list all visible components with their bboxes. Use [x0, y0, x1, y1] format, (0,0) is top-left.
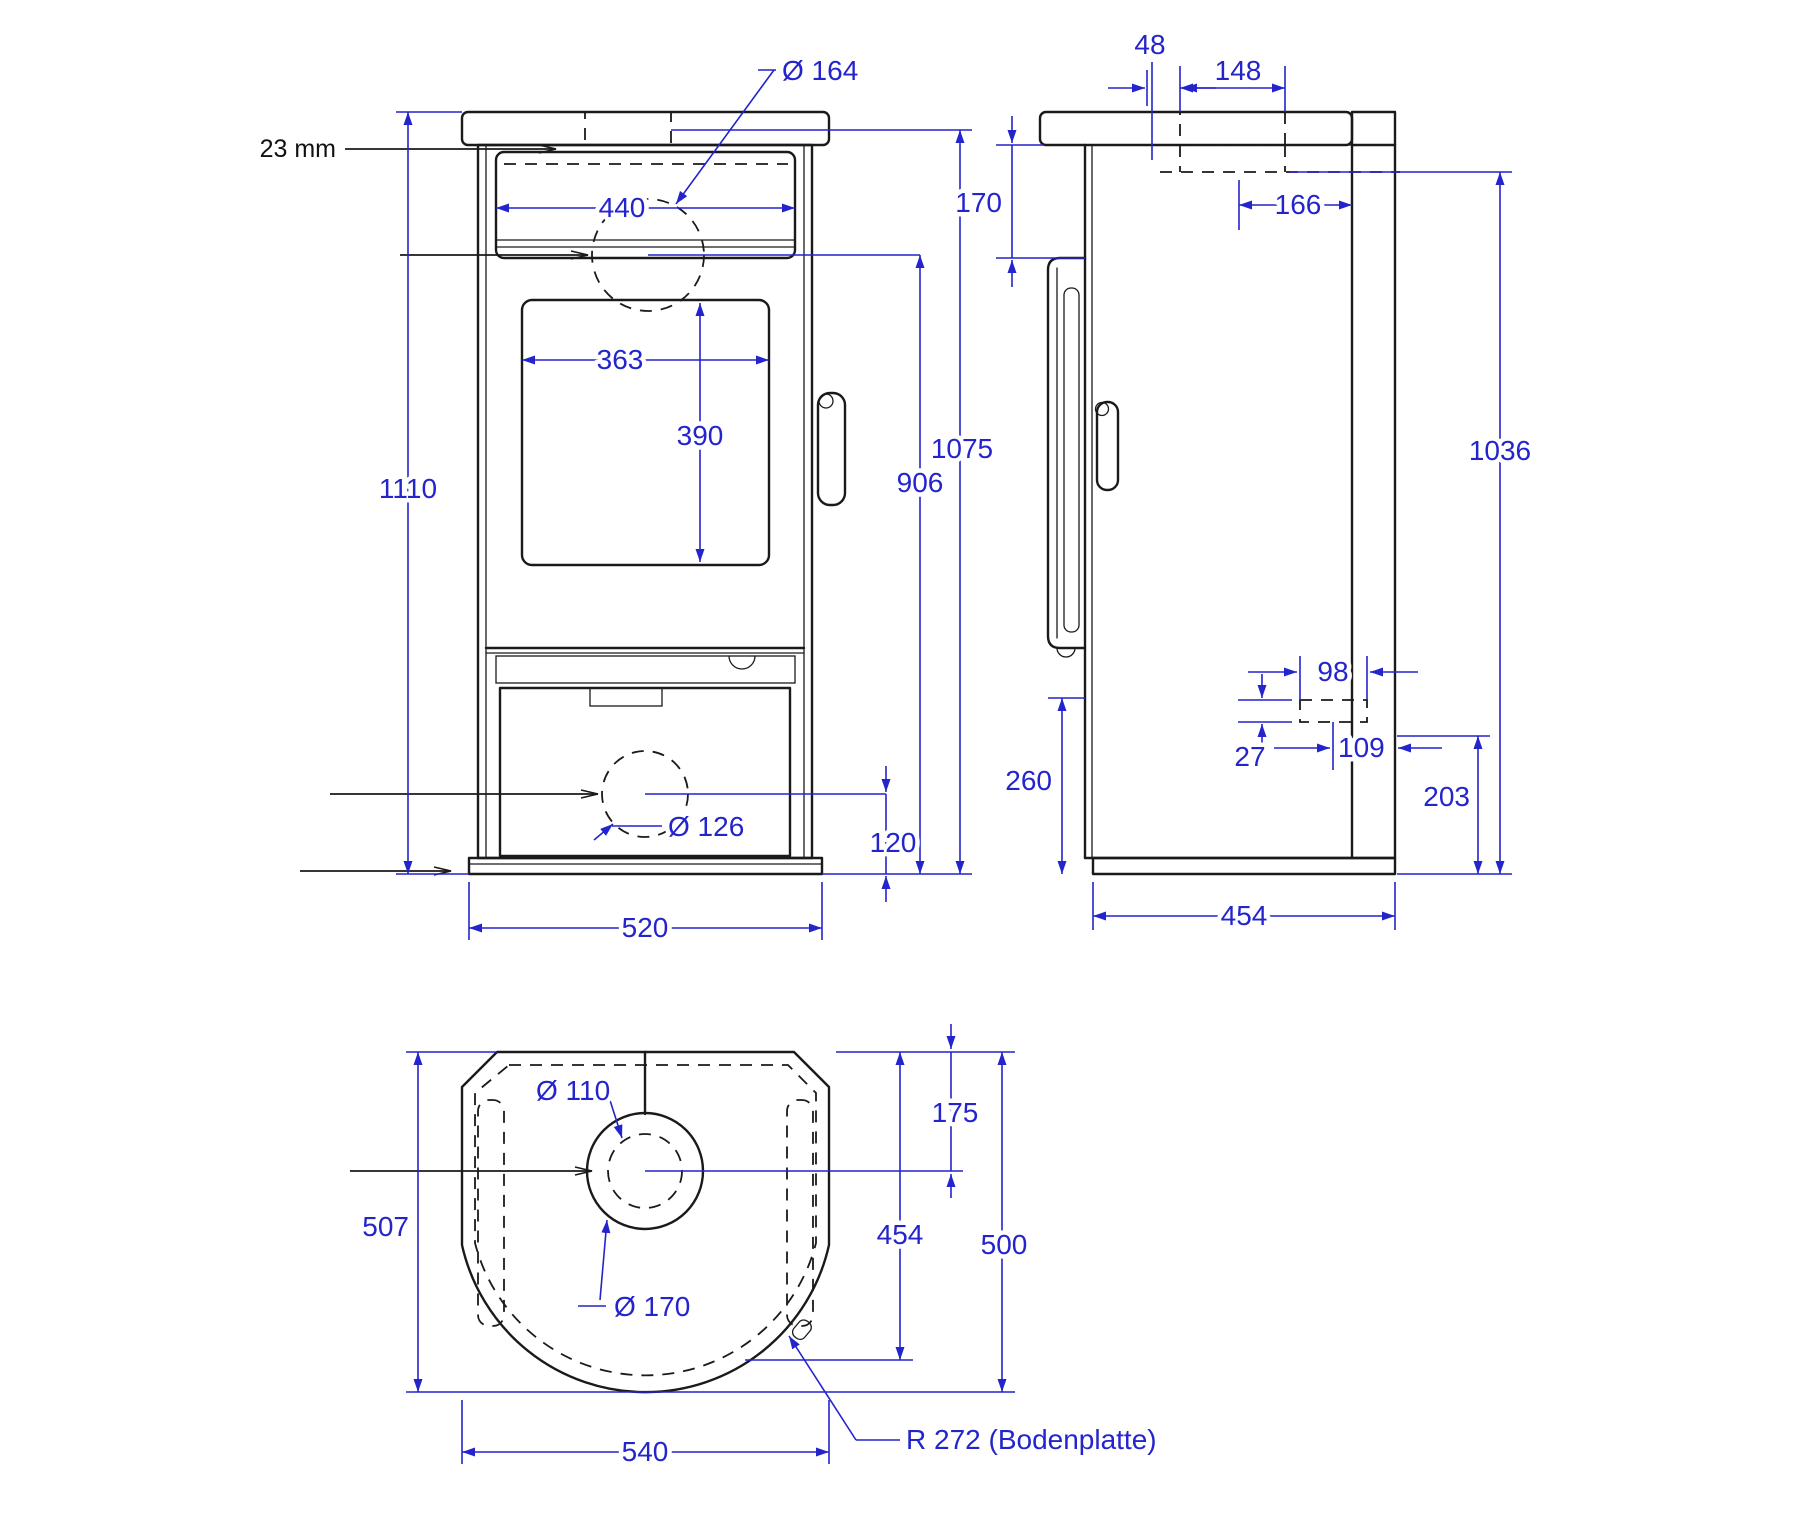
side-dim-lower-section: 260: [1005, 698, 1085, 874]
side-door-foot: [1057, 648, 1075, 657]
side-dim-rear-inlet-bottom: 203: [1397, 736, 1490, 874]
front-ash-lip: [496, 656, 795, 683]
front-handle-mount: [819, 394, 833, 408]
front-lower-panel: [500, 688, 790, 856]
side-plinth: [1093, 858, 1395, 874]
front-dim-top-box-width: 440: [496, 192, 795, 223]
side-dim-203-label: 203: [1423, 781, 1470, 812]
front-top-plate: [462, 112, 829, 145]
front-dim-363-label: 363: [597, 344, 644, 375]
side-dim-98-label: 98: [1317, 656, 1348, 687]
side-dim-1036-label: 1036: [1469, 435, 1531, 466]
side-dim-109-label: 109: [1338, 732, 1385, 763]
side-dim-outlet-offset: 48: [1108, 29, 1216, 160]
side-dim-rear-inlet-offset: 109: [1274, 722, 1442, 770]
top-dia-110-label: Ø 110: [536, 1075, 610, 1106]
front-warming-box: [496, 152, 795, 258]
front-ash-pull: [729, 656, 755, 669]
front-dim-glass-width: 363: [522, 344, 769, 375]
front-dia-164-label: Ø 164: [782, 55, 858, 86]
top-left-slot-hidden: [478, 1100, 504, 1326]
front-dia-126-label: Ø 126: [668, 811, 744, 842]
front-note-23mm: 23 mm: [260, 135, 336, 163]
side-rear-inlet-hidden: [1300, 700, 1367, 722]
top-label-radius: R 272 (Bodenplatte): [789, 1336, 1157, 1455]
top-dim-overall-507: 507: [362, 1052, 418, 1392]
top-dim-500-label: 500: [981, 1229, 1028, 1260]
front-dim-total-height: 1110: [379, 112, 437, 874]
top-dia-170-label: Ø 170: [614, 1291, 690, 1322]
top-view: 507 175 454 500 540 Ø 110 Ø 170: [350, 1024, 1157, 1467]
top-dim-flue-from-front: 175: [932, 1024, 979, 1198]
front-dim-440-label: 440: [599, 192, 646, 223]
front-dim-120-label: 120: [870, 827, 917, 858]
drawing-page: 23 mm 440 363 390 1110 906: [0, 0, 1800, 1514]
top-dim-front-to-arc: 454: [877, 1052, 924, 1360]
top-label-dia-110: Ø 110: [536, 1075, 622, 1138]
side-dim-166-label: 166: [1275, 189, 1322, 220]
front-dim-body-height: 1075: [931, 130, 993, 874]
side-dim-170-label: 170: [955, 187, 1002, 218]
front-body-outline: [478, 145, 812, 858]
front-dim-glass-height: 390: [677, 303, 724, 562]
front-dim-390-label: 390: [677, 420, 724, 451]
side-dim-148-label: 148: [1215, 55, 1262, 86]
top-dim-base-plate-width: 540: [462, 1436, 829, 1467]
front-lower-tab: [590, 688, 662, 706]
side-dim-454-label: 454: [1221, 900, 1268, 931]
side-top-plate: [1040, 112, 1352, 145]
top-radius-label: R 272 (Bodenplatte): [906, 1424, 1157, 1455]
front-dim-906-label: 906: [897, 467, 944, 498]
front-label-dia-126: Ø 126: [594, 811, 744, 842]
front-plinth: [469, 858, 822, 874]
side-dim-outlet-length: 148: [1180, 55, 1285, 112]
front-dim-1075-label: 1075: [931, 433, 993, 464]
side-dim-260-label: 260: [1005, 765, 1052, 796]
front-door-glass: [522, 300, 769, 565]
side-view: 48 148 170 166 1036: [955, 29, 1531, 931]
side-dim-base-depth: 454: [1093, 882, 1395, 931]
side-dim-outlet-to-rear: 166: [1239, 180, 1352, 230]
top-dim-454-label: 454: [877, 1219, 924, 1250]
top-right-slot-hidden: [787, 1100, 813, 1326]
side-dim-rear-inlet-width: 98: [1248, 656, 1418, 700]
top-dim-overall-500: 500: [981, 1052, 1028, 1392]
top-dim-175-label: 175: [932, 1097, 979, 1128]
side-dim-top-section: 170: [955, 116, 1085, 287]
front-top-outlet-hidden: [585, 112, 671, 145]
front-dim-1110-label: 1110: [379, 473, 437, 504]
front-dim-base-width: 520: [469, 912, 822, 943]
side-dim-27-label: 27: [1234, 741, 1265, 772]
side-dim-rear-inlet-height: 27: [1234, 674, 1292, 772]
front-dim-520-label: 520: [622, 912, 669, 943]
front-view: 23 mm 440 363 390 1110 906: [260, 55, 994, 943]
side-dim-rear-height: 1036: [1290, 172, 1531, 874]
top-dim-507-label: 507: [362, 1211, 409, 1242]
front-dim-outlet-height: 906: [897, 255, 944, 874]
top-dim-540-label: 540: [622, 1436, 669, 1467]
side-flue-cap: [1352, 112, 1395, 145]
top-label-dia-170: Ø 170: [578, 1220, 690, 1322]
side-dim-48-label: 48: [1134, 29, 1165, 60]
side-glass-edge: [1064, 288, 1079, 632]
front-door-handle: [818, 393, 845, 505]
drawing-canvas: 23 mm 440 363 390 1110 906: [0, 0, 1800, 1514]
front-dim-inlet-height: 120: [870, 766, 917, 902]
side-top-outlet-hidden: [1180, 112, 1285, 145]
